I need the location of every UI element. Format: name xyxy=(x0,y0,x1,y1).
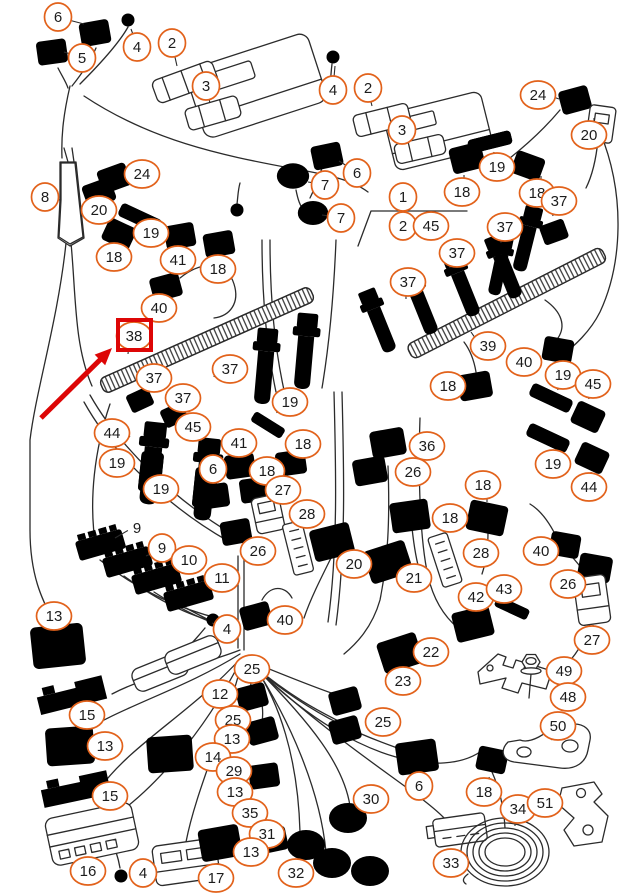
ignition-coil-37-1 xyxy=(355,286,402,356)
callout-number-18[interactable]: 18 xyxy=(106,249,123,266)
callout-number-20[interactable]: 20 xyxy=(581,127,598,144)
callout-number-37[interactable]: 37 xyxy=(551,193,568,210)
pin-strip-28-b xyxy=(427,532,462,588)
callout-number-8[interactable]: 8 xyxy=(41,189,49,206)
callout-number-13[interactable]: 13 xyxy=(46,608,63,625)
connector-18-h xyxy=(465,499,509,537)
callout-number-37[interactable]: 37 xyxy=(497,219,514,236)
connector-item5 xyxy=(35,38,68,66)
connector-44-b xyxy=(573,441,610,475)
callout-number-7[interactable]: 7 xyxy=(321,177,329,194)
callout-number-13[interactable]: 13 xyxy=(97,738,114,755)
callout-number-18[interactable]: 18 xyxy=(295,436,312,453)
callout-number-9[interactable]: 9 xyxy=(158,540,166,557)
callout-number-13[interactable]: 13 xyxy=(227,784,244,801)
leader-line-4 xyxy=(334,66,335,76)
callout-number-7[interactable]: 7 xyxy=(337,210,345,227)
callout-number-20[interactable]: 20 xyxy=(91,202,108,219)
leader-line-6 xyxy=(71,21,84,24)
bracket-48 xyxy=(478,654,552,693)
ring-terminal-4c xyxy=(231,204,244,225)
callout-number-30[interactable]: 30 xyxy=(363,791,380,808)
callout-number-25[interactable]: 25 xyxy=(375,714,392,731)
callout-number-26[interactable]: 26 xyxy=(560,576,577,593)
connector-7-a xyxy=(277,159,309,189)
connector-26-b xyxy=(351,455,388,487)
callout-number-9[interactable]: 9 xyxy=(133,520,141,537)
callout-number-21[interactable]: 21 xyxy=(406,570,423,587)
callout-number-40[interactable]: 40 xyxy=(277,612,294,629)
callout-number-45[interactable]: 45 xyxy=(185,419,202,436)
callout-number-2[interactable]: 2 xyxy=(399,218,407,235)
callout-number-17[interactable]: 17 xyxy=(208,870,225,887)
callout-number-42[interactable]: 42 xyxy=(468,589,485,606)
callout-number-6[interactable]: 6 xyxy=(353,165,361,182)
ring-terminal-4a xyxy=(122,14,135,35)
callout-number-27[interactable]: 27 xyxy=(584,632,601,649)
callout-number-36[interactable]: 36 xyxy=(419,438,436,455)
connector-item6-topleft xyxy=(78,19,112,48)
callout-number-39[interactable]: 39 xyxy=(480,338,497,355)
connector-14 xyxy=(146,734,194,773)
callout-number-26[interactable]: 26 xyxy=(250,543,267,560)
bracket-51 xyxy=(558,782,608,846)
callout-number-4[interactable]: 4 xyxy=(133,39,141,56)
connector-25-d xyxy=(327,715,362,746)
callout-number-19[interactable]: 19 xyxy=(489,159,506,176)
callout-number-24[interactable]: 24 xyxy=(530,87,547,104)
callout-number-45[interactable]: 45 xyxy=(423,218,440,235)
ignition-coil-mid-2 xyxy=(288,312,322,390)
callout-number-2[interactable]: 2 xyxy=(364,80,372,97)
callout-number-18[interactable]: 18 xyxy=(440,378,457,395)
callout-number-37[interactable]: 37 xyxy=(400,274,417,291)
callout-number-6[interactable]: 6 xyxy=(415,778,423,795)
callout-number-5[interactable]: 5 xyxy=(78,50,86,67)
parts-diagram-canvas: 6542342367724201918183737124582420191841… xyxy=(0,0,634,893)
callout-number-24[interactable]: 24 xyxy=(134,166,151,183)
callout-number-35[interactable]: 35 xyxy=(242,805,259,822)
connector-24-right xyxy=(557,85,592,116)
corrugated-19-mid xyxy=(250,411,286,439)
callout-number-49[interactable]: 49 xyxy=(556,663,573,680)
callout-number-44[interactable]: 44 xyxy=(581,479,598,496)
callout-number-37[interactable]: 37 xyxy=(449,245,466,262)
callout-number-11[interactable]: 11 xyxy=(214,570,230,587)
callout-number-1[interactable]: 1 xyxy=(399,189,407,206)
callout-number-2[interactable]: 2 xyxy=(168,35,176,52)
callout-number-6[interactable]: 6 xyxy=(209,461,217,478)
callout-number-19[interactable]: 19 xyxy=(153,481,170,498)
callout-number-13[interactable]: 13 xyxy=(224,731,241,748)
callout-number-25[interactable]: 25 xyxy=(244,661,261,678)
callout-number-4[interactable]: 4 xyxy=(329,82,337,99)
callout-number-37[interactable]: 37 xyxy=(146,370,163,387)
connector-36 xyxy=(369,426,408,459)
connector-6-bottom xyxy=(395,738,440,776)
callout-number-28[interactable]: 28 xyxy=(473,545,490,562)
callout-number-18[interactable]: 18 xyxy=(476,784,493,801)
callout-number-41[interactable]: 41 xyxy=(231,435,248,452)
connector-18-g xyxy=(389,498,431,533)
leader-line-39 xyxy=(471,332,474,337)
wire-coil-34 xyxy=(461,818,549,886)
connector-7-b xyxy=(298,197,328,225)
callout-number-15[interactable]: 15 xyxy=(102,788,119,805)
callout-number-23[interactable]: 23 xyxy=(395,673,412,690)
callout-number-33[interactable]: 33 xyxy=(443,855,460,872)
callout-number-37[interactable]: 37 xyxy=(175,390,192,407)
connector-37-top xyxy=(539,218,570,246)
connector-18-b xyxy=(202,230,236,259)
callout-number-19[interactable]: 19 xyxy=(109,455,126,472)
callout-number-4[interactable]: 4 xyxy=(223,621,231,638)
callout-number-6[interactable]: 6 xyxy=(54,9,62,26)
callout-number-10[interactable]: 10 xyxy=(181,552,198,569)
sensor-40-b xyxy=(541,336,575,365)
connector-25-c xyxy=(327,686,362,717)
callout-number-18[interactable]: 18 xyxy=(210,261,227,278)
connector-33 xyxy=(425,813,487,849)
callout-number-43[interactable]: 43 xyxy=(496,581,513,598)
ring-terminal-4e xyxy=(115,870,128,891)
connector-45-b xyxy=(569,400,606,434)
callout-number-3[interactable]: 3 xyxy=(202,78,210,95)
callout-number-40[interactable]: 40 xyxy=(533,543,550,560)
corrugated-19-d xyxy=(525,422,571,453)
leader-line-2 xyxy=(175,57,177,66)
callout-number-48[interactable]: 48 xyxy=(560,689,577,706)
highlight-arrow-shaft xyxy=(41,358,102,418)
callout-number-18[interactable]: 18 xyxy=(454,184,471,201)
callout-number-18[interactable]: 18 xyxy=(442,510,459,527)
callout-number-19[interactable]: 19 xyxy=(282,394,299,411)
connector-6-top xyxy=(310,141,344,171)
callout-number-34[interactable]: 34 xyxy=(510,801,527,818)
callout-number-45[interactable]: 45 xyxy=(585,376,602,393)
callout-number-41[interactable]: 41 xyxy=(170,252,187,269)
callout-number-19[interactable]: 19 xyxy=(545,456,562,473)
callout-number-28[interactable]: 28 xyxy=(299,506,316,523)
callout-number-4[interactable]: 4 xyxy=(139,865,147,882)
callout-number-32[interactable]: 32 xyxy=(288,865,305,882)
relay-module-12-b xyxy=(163,633,224,676)
callout-number-26[interactable]: 26 xyxy=(405,464,422,481)
connector-6-mid xyxy=(197,482,230,510)
callout-number-19[interactable]: 19 xyxy=(143,225,160,242)
callout-number-20[interactable]: 20 xyxy=(346,556,363,573)
callout-number-3[interactable]: 3 xyxy=(398,122,406,139)
round-connector-32-b xyxy=(351,851,389,886)
grommet-boot-8 xyxy=(58,148,84,246)
callout-number-15[interactable]: 15 xyxy=(79,707,96,724)
callout-number-18[interactable]: 18 xyxy=(475,477,492,494)
callout-number-12[interactable]: 12 xyxy=(212,686,229,703)
parts-diagram-page: 6542342367724201918183737124582420191841… xyxy=(0,0,634,893)
callout-number-51[interactable]: 51 xyxy=(537,795,554,812)
callout-number-16[interactable]: 16 xyxy=(80,863,97,880)
callout-number-13[interactable]: 13 xyxy=(243,844,260,861)
callout-number-50[interactable]: 50 xyxy=(550,718,567,735)
connector-29 xyxy=(247,762,280,790)
callout-number-27[interactable]: 27 xyxy=(275,482,292,499)
callout-number-40[interactable]: 40 xyxy=(516,354,533,371)
callout-number-37[interactable]: 37 xyxy=(222,361,239,378)
callout-number-22[interactable]: 22 xyxy=(423,644,440,661)
ring-terminal-4b xyxy=(327,51,340,72)
callout-number-19[interactable]: 19 xyxy=(555,367,572,384)
callout-number-38[interactable]: 38 xyxy=(126,328,143,345)
callout-number-44[interactable]: 44 xyxy=(104,425,121,442)
callout-number-40[interactable]: 40 xyxy=(151,300,168,317)
